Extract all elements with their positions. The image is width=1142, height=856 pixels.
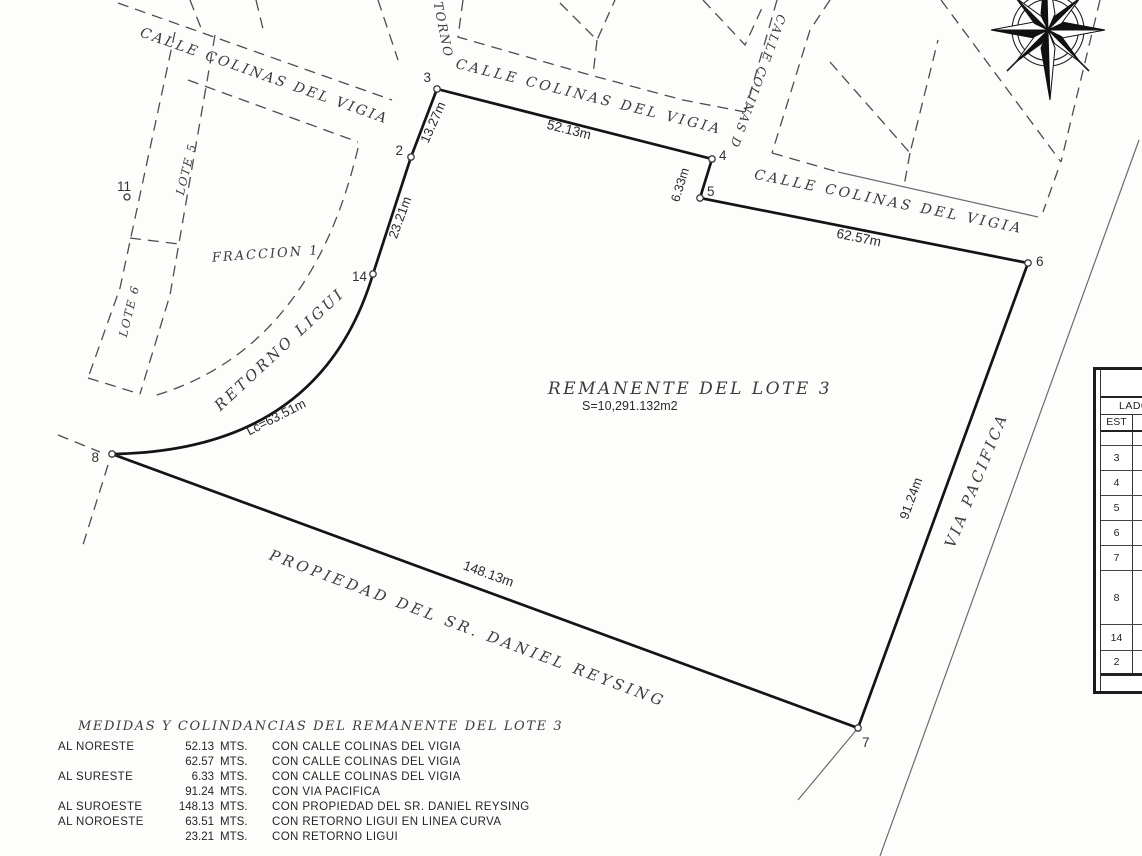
legend-distance: 6.33 bbox=[166, 770, 214, 785]
vertex-label-6: 6 bbox=[1036, 254, 1044, 269]
cell-est: 2 bbox=[1101, 651, 1133, 673]
vertex-label-4: 4 bbox=[719, 148, 727, 163]
cell-pv bbox=[1133, 496, 1142, 520]
street-via-pacifica: VIA PACIFICA bbox=[941, 410, 1012, 550]
legend-row: 62.57 MTS. CON CALLE COLINAS DEL VIGIA bbox=[58, 755, 558, 770]
plat-map-page: { "map": { "parcel_name": "REMANENTE DEL… bbox=[0, 0, 1142, 856]
compass-rose-icon bbox=[991, 0, 1105, 100]
cell-pv bbox=[1133, 651, 1142, 673]
street-names: CALLE COLINAS DEL VIGIA CALLE COLINAS DE… bbox=[138, 0, 1025, 550]
coordinate-table-inner: LADO EST PV 3 4 5 6 7 8 bbox=[1100, 370, 1142, 691]
legend-row: 23.21 MTS. CON RETORNO LIGUI bbox=[58, 830, 558, 845]
vertex-label-8: 8 bbox=[91, 450, 99, 465]
coordinate-table-group-header: LADO bbox=[1101, 398, 1142, 415]
cell-est: 6 bbox=[1101, 521, 1133, 545]
cell-est bbox=[1101, 432, 1133, 445]
parcel-area: S=10,291.132m2 bbox=[582, 399, 678, 413]
legend-unit: MTS. bbox=[220, 740, 258, 755]
legend-unit: MTS. bbox=[220, 785, 258, 800]
measurement-91-24: 91.24m bbox=[896, 476, 925, 522]
label-lote-6: LOTE 6 bbox=[116, 284, 143, 340]
measurement-labels: 13.27m 52.13m 6.33m 62.57m 91.24m 148.13… bbox=[244, 99, 926, 589]
vertex-label-7: 7 bbox=[862, 735, 870, 750]
street-calle-colinas-upper-left: CALLE COLINAS DEL VIGIA bbox=[138, 25, 391, 128]
cell-est: 8 bbox=[1101, 571, 1133, 624]
vertex-label-5: 5 bbox=[707, 184, 715, 199]
legend-row: AL SURESTE 6.33 MTS. CON CALLE COLINAS D… bbox=[58, 770, 558, 785]
side-table-row: 6 bbox=[1101, 521, 1142, 546]
cell-est: 14 bbox=[1101, 625, 1133, 650]
legend-distance: 52.13 bbox=[166, 740, 214, 755]
legend-unit: MTS. bbox=[220, 830, 258, 845]
measurement-52-13: 52.13m bbox=[545, 117, 592, 142]
side-table-row: 4 bbox=[1101, 471, 1142, 496]
measurement-23-21: 23.21m bbox=[385, 195, 414, 241]
measurement-6-33: 6.33m bbox=[668, 166, 692, 203]
cell-est: 7 bbox=[1101, 546, 1133, 570]
vertex-label-3: 3 bbox=[423, 70, 431, 85]
vertex-label-14: 14 bbox=[352, 269, 368, 284]
vertex-label-11: 11 bbox=[117, 179, 131, 194]
legend-distance: 63.51 bbox=[166, 815, 214, 830]
cell-pv: 14 bbox=[1133, 571, 1142, 624]
legend-boundary: CON RETORNO LIGUI EN LINEA CURVA bbox=[272, 815, 501, 830]
legend-unit: MTS. bbox=[220, 770, 258, 785]
coordinate-table-title-band bbox=[1101, 370, 1142, 398]
street-retorno-top: RETORNO bbox=[426, 0, 456, 59]
parcel-name: REMANENTE DEL LOTE 3 bbox=[547, 379, 832, 399]
legend-boundary: CON CALLE COLINAS DEL VIGIA bbox=[272, 740, 461, 755]
cell-pv bbox=[1133, 432, 1142, 445]
street-retorno-ligui: RETORNO LIGUI bbox=[210, 284, 348, 415]
measurement-62-57: 62.57m bbox=[835, 226, 882, 250]
legend-row: 91.24 MTS. CON VIA PACIFICA bbox=[58, 785, 558, 800]
side-table-row: 2 bbox=[1101, 651, 1142, 675]
side-table-row: 14 bbox=[1101, 625, 1142, 651]
label-lote-5: LOTE 5 bbox=[173, 142, 200, 198]
legend-boundary: CON VIA PACIFICA bbox=[272, 785, 380, 800]
street-calle-colinas-right: CALLE COLINAS DEL VIGIA bbox=[753, 167, 1025, 237]
cell-est: 5 bbox=[1101, 496, 1133, 520]
side-table-row: 5 bbox=[1101, 496, 1142, 521]
measurements-legend: MEDIDAS Y COLINDANCIAS DEL REMANENTE DEL… bbox=[58, 719, 558, 845]
measurement-lc-63-51: Lc=63.51m bbox=[244, 396, 308, 439]
parcel-title-block: REMANENTE DEL LOTE 3 S=10,291.132m2 bbox=[547, 379, 832, 413]
legend-direction: AL SURESTE bbox=[58, 770, 166, 785]
legend-distance: 23.21 bbox=[166, 830, 214, 845]
side-table-row: 3 bbox=[1101, 446, 1142, 471]
street-calle-colinas-top: CALLE COLINAS DEL VIGIA bbox=[454, 56, 724, 138]
legend-direction: AL NORESTE bbox=[58, 740, 166, 755]
side-table-row bbox=[1101, 432, 1142, 446]
legend-row: AL SUROESTE 148.13 MTS. CON PROPIEDAD DE… bbox=[58, 800, 558, 815]
cell-pv bbox=[1133, 625, 1142, 650]
legend-row: AL NORESTE 52.13 MTS. CON CALLE COLINAS … bbox=[58, 740, 558, 755]
legend-direction: AL SUROESTE bbox=[58, 800, 166, 815]
col-header-pv: PV bbox=[1133, 415, 1142, 430]
legend-boundary: CON PROPIEDAD DEL SR. DANIEL REYSING bbox=[272, 800, 530, 815]
col-header-est: EST bbox=[1101, 415, 1133, 430]
vertex-label-2: 2 bbox=[395, 143, 403, 158]
legend-distance: 62.57 bbox=[166, 755, 214, 770]
legend-boundary: CON RETORNO LIGUI bbox=[272, 830, 398, 845]
cell-pv bbox=[1133, 446, 1142, 470]
label-fraccion-1: FRACCION 1 bbox=[211, 243, 320, 266]
legend-boundary: CON CALLE COLINAS DEL VIGIA bbox=[272, 755, 461, 770]
vertex-labels: 3 2 14 11 8 4 5 6 7 bbox=[91, 70, 1043, 750]
legend-distance: 91.24 bbox=[166, 785, 214, 800]
cell-pv bbox=[1133, 546, 1142, 570]
cell-est: 3 bbox=[1101, 446, 1133, 470]
cell-est: 4 bbox=[1101, 471, 1133, 495]
legend-row: AL NOROESTE 63.51 MTS. CON RETORNO LIGUI… bbox=[58, 815, 558, 830]
measurement-13-27: 13.27m bbox=[417, 99, 448, 145]
side-table-row: 8 14 bbox=[1101, 571, 1142, 625]
coordinate-table-header-row: EST PV bbox=[1101, 415, 1142, 432]
legend-unit: MTS. bbox=[220, 815, 258, 830]
cell-pv bbox=[1133, 471, 1142, 495]
coordinate-table-bottom-band bbox=[1101, 675, 1142, 692]
street-calle-colinas-cross: CALLE COLINAS D bbox=[727, 13, 789, 151]
parcel-boundary bbox=[112, 89, 1028, 728]
legend-distance: 148.13 bbox=[166, 800, 214, 815]
cell-pv bbox=[1133, 521, 1142, 545]
legend-unit: MTS. bbox=[220, 800, 258, 815]
dashed-street-lines bbox=[58, 0, 1100, 548]
legend-unit: MTS. bbox=[220, 755, 258, 770]
coordinate-table: LADO EST PV 3 4 5 6 7 8 bbox=[1093, 367, 1142, 694]
legend-title: MEDIDAS Y COLINDANCIAS DEL REMANENTE DEL… bbox=[78, 719, 558, 734]
legend-direction: AL NOROESTE bbox=[58, 815, 166, 830]
side-table-row: 7 bbox=[1101, 546, 1142, 571]
legend-boundary: CON CALLE COLINAS DEL VIGIA bbox=[272, 770, 461, 785]
